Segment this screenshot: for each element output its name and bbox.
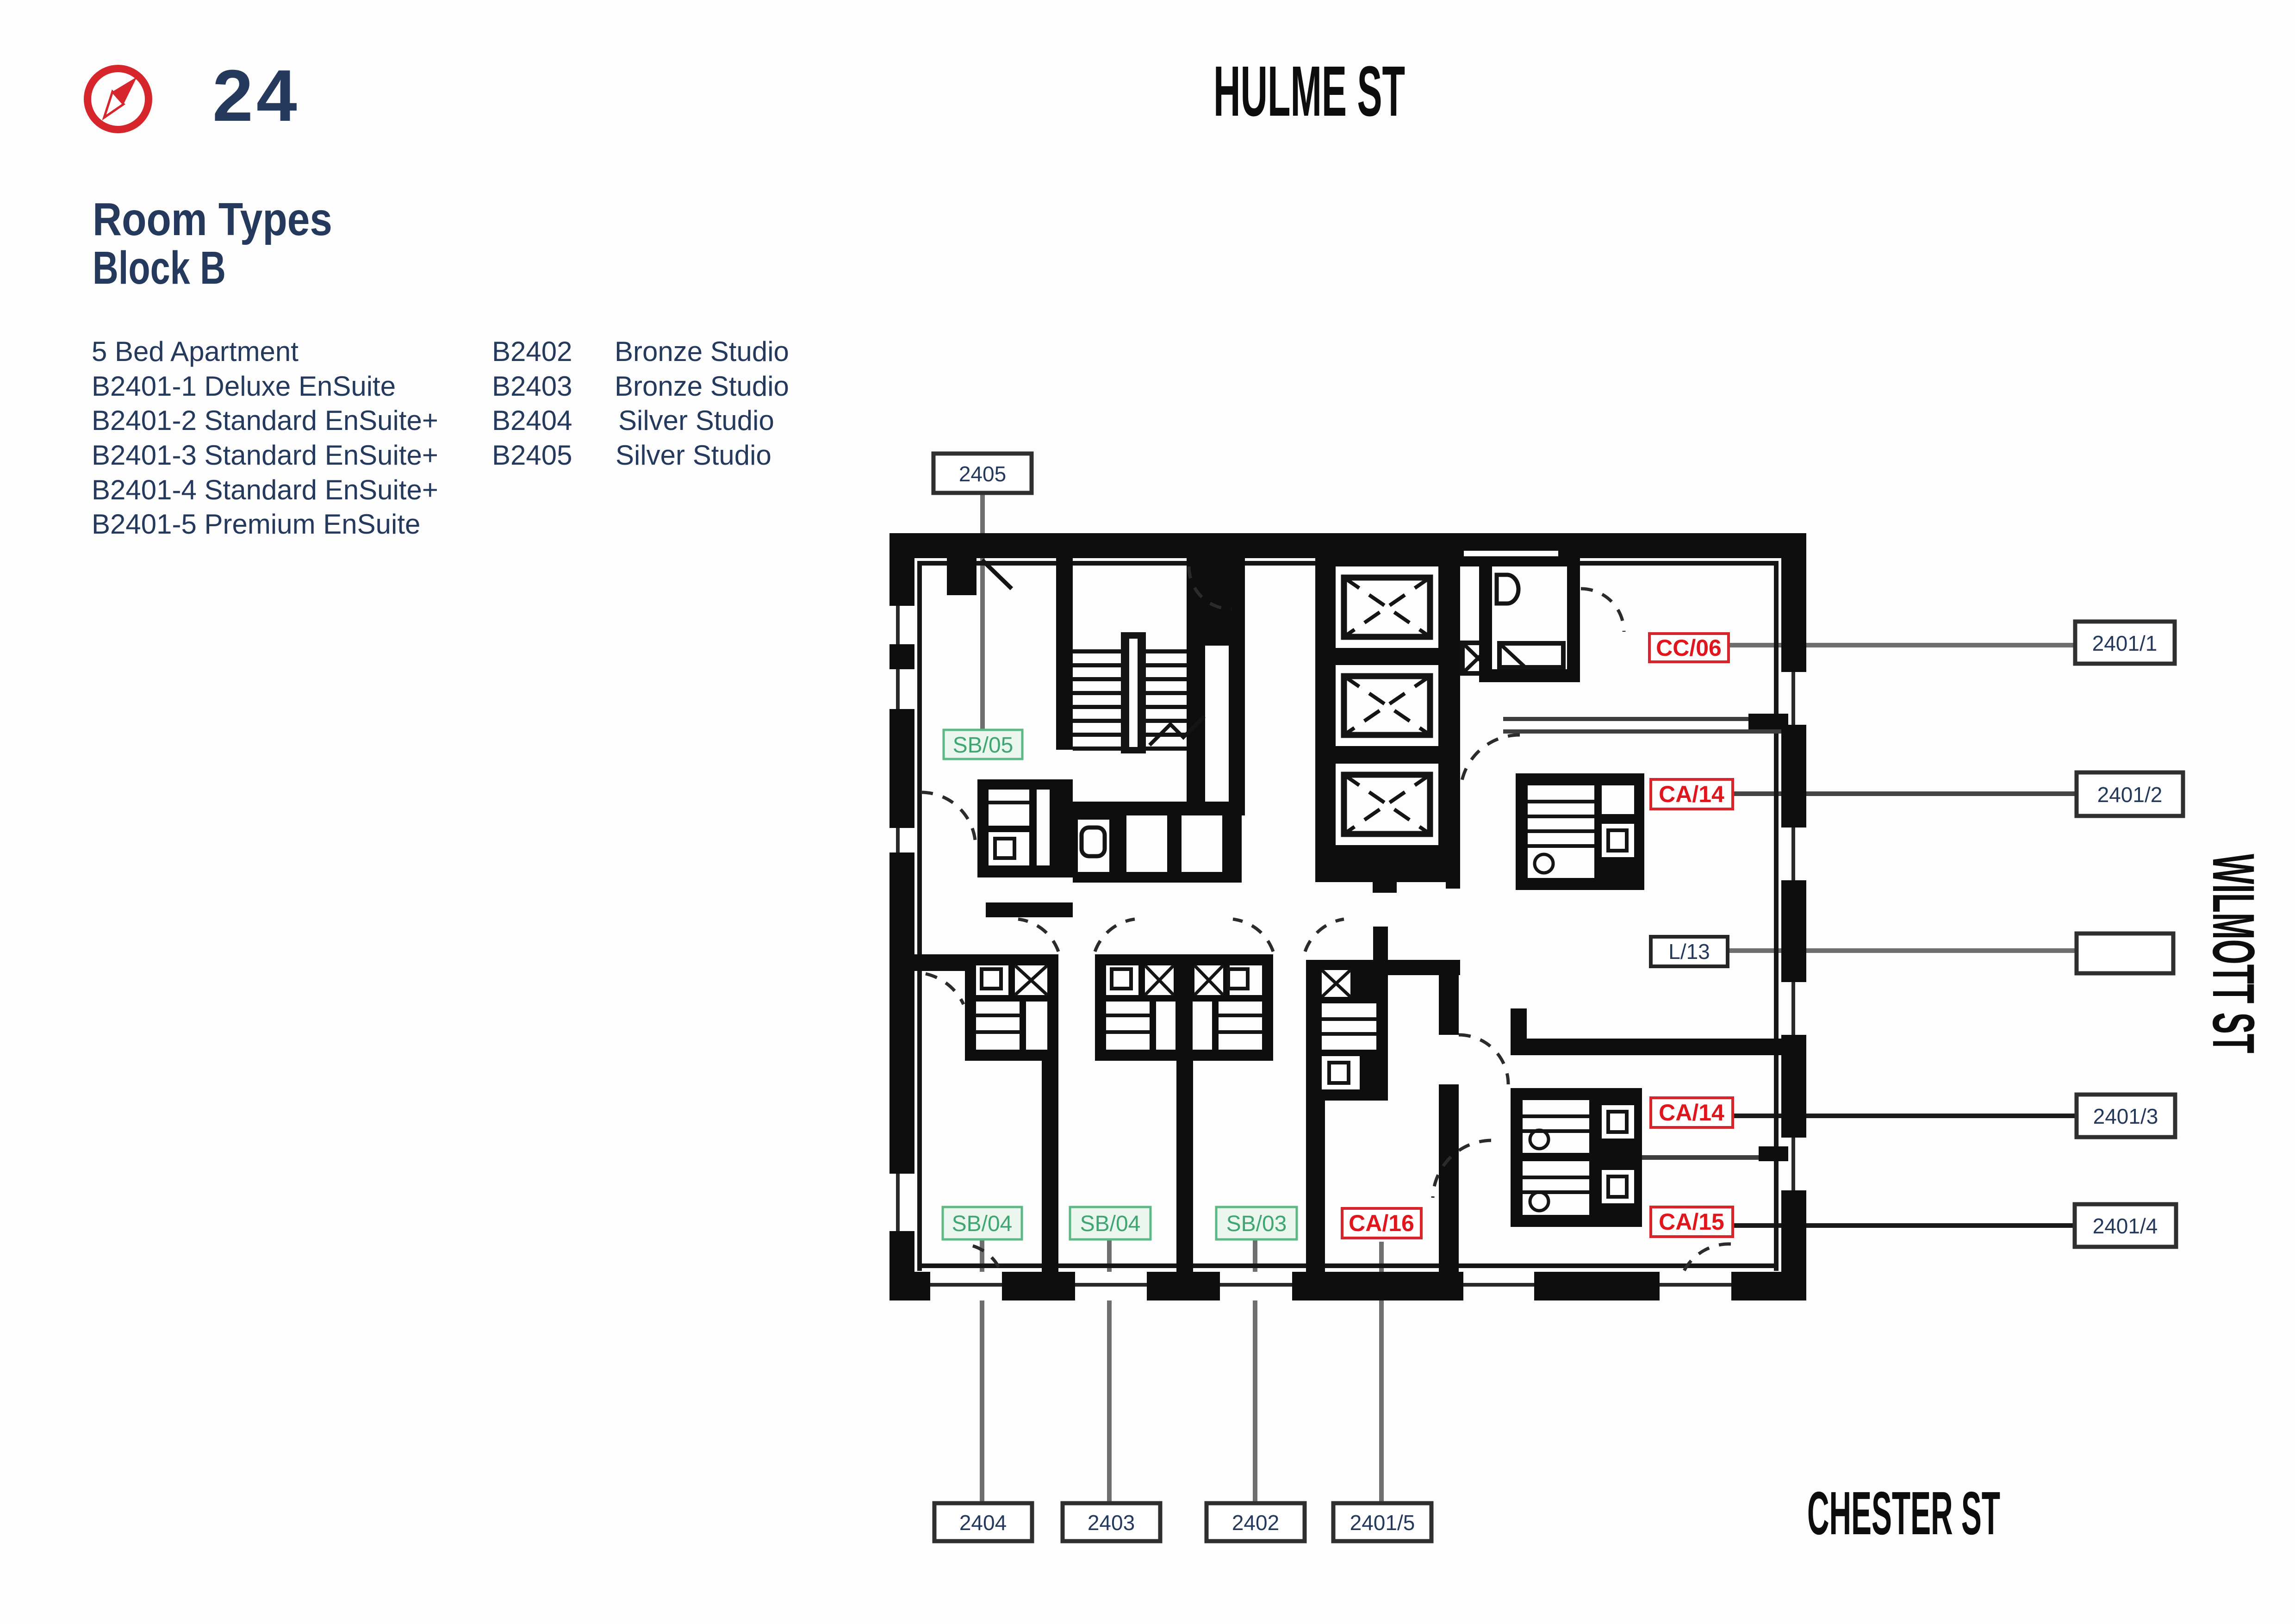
svg-text:B2405: B2405 [492, 440, 572, 471]
svg-text:CA/14: CA/14 [1659, 1100, 1724, 1126]
svg-text:Block B: Block B [93, 242, 226, 294]
svg-text:2403: 2403 [1088, 1511, 1135, 1535]
svg-text:2404: 2404 [959, 1511, 1007, 1535]
svg-text:SB/03: SB/03 [1226, 1212, 1287, 1236]
svg-text:2401/2: 2401/2 [2097, 783, 2163, 807]
svg-text:B2401-4 Standard EnSuite+: B2401-4 Standard EnSuite+ [92, 474, 438, 505]
svg-text:B2402: B2402 [492, 336, 572, 367]
svg-text:Silver Studio: Silver Studio [618, 405, 774, 436]
svg-text:SB/05: SB/05 [953, 733, 1014, 758]
svg-text:Bronze Studio: Bronze Studio [615, 371, 789, 402]
svg-text:2405: 2405 [959, 462, 1006, 486]
svg-text:B2401-2 Standard EnSuite+: B2401-2 Standard EnSuite+ [92, 405, 438, 436]
svg-text:CA/16: CA/16 [1349, 1210, 1414, 1236]
svg-text:B2403: B2403 [492, 371, 572, 402]
svg-text:2401/4: 2401/4 [2093, 1214, 2158, 1238]
svg-text:Silver Studio: Silver Studio [616, 440, 771, 471]
svg-text:SB/04: SB/04 [1080, 1212, 1141, 1236]
svg-text:2401/3: 2401/3 [2093, 1104, 2158, 1128]
svg-text:CA/14: CA/14 [1659, 781, 1724, 807]
svg-text:B2401-1 Deluxe EnSuite: B2401-1 Deluxe EnSuite [92, 371, 396, 402]
svg-text:L/13: L/13 [1668, 940, 1710, 964]
svg-text:2401/5: 2401/5 [1350, 1511, 1415, 1535]
svg-text:B2401-5 Premium EnSuite: B2401-5 Premium EnSuite [92, 509, 420, 540]
svg-text:2402: 2402 [1232, 1511, 1279, 1535]
svg-text:HULME ST: HULME ST [1213, 51, 1405, 131]
svg-text:Bronze Studio: Bronze Studio [615, 336, 789, 367]
svg-text:CC/06: CC/06 [1656, 635, 1722, 661]
svg-text:SB/04: SB/04 [952, 1212, 1013, 1236]
svg-text:B2401-3 Standard EnSuite+: B2401-3 Standard EnSuite+ [92, 440, 438, 471]
svg-text:B2404: B2404 [492, 405, 572, 436]
svg-text:CA/15: CA/15 [1659, 1209, 1724, 1235]
svg-text:24: 24 [212, 55, 300, 137]
svg-text:Room Types: Room Types [93, 193, 332, 245]
svg-text:CHESTER ST: CHESTER ST [1807, 1479, 2000, 1547]
svg-text:WILMOTT ST: WILMOTT ST [2200, 854, 2266, 1053]
svg-text:2401/1: 2401/1 [2092, 631, 2158, 655]
svg-text:5 Bed Apartment: 5 Bed Apartment [92, 336, 299, 367]
